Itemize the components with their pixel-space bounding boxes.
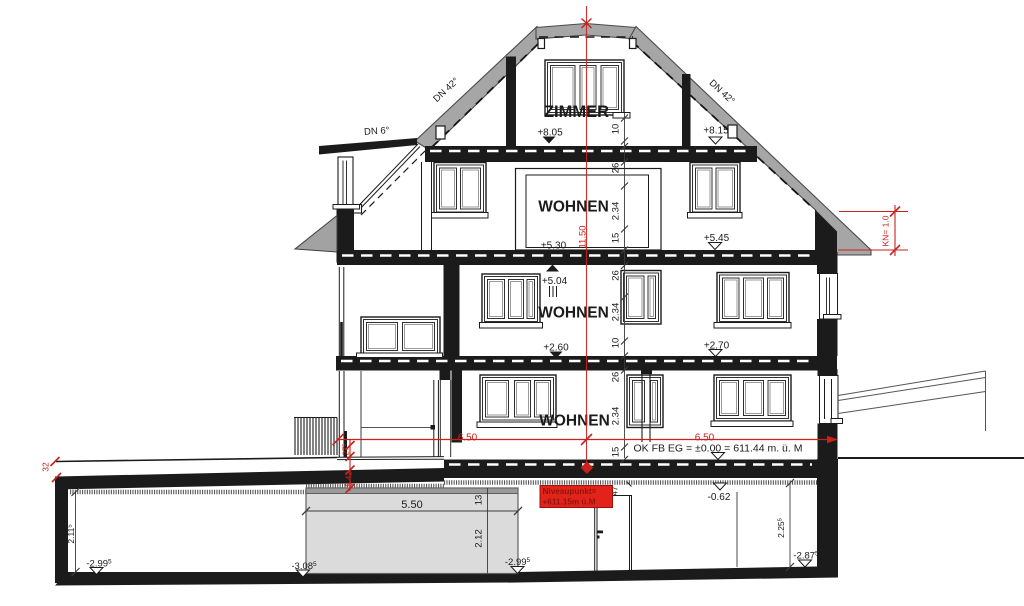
svg-text:+5.04: +5.04	[542, 276, 568, 287]
svg-text:26: 26	[611, 270, 622, 281]
svg-text:Niveaupunkt=: Niveaupunkt=	[543, 487, 597, 496]
svg-text:2.34: 2.34	[611, 202, 622, 221]
svg-text:WOHNEN: WOHNEN	[539, 413, 610, 430]
svg-text:5.42: 5.42	[345, 471, 354, 487]
svg-text:+5.30: +5.30	[541, 241, 567, 252]
svg-text:5.50: 5.50	[401, 499, 422, 511]
svg-text:2.34: 2.34	[611, 407, 622, 426]
svg-text:15: 15	[611, 447, 622, 458]
svg-text:10: 10	[611, 124, 622, 135]
svg-text:26: 26	[611, 372, 622, 383]
svg-text:DN 6°: DN 6°	[364, 125, 390, 138]
svg-text:-0.62: -0.62	[708, 492, 731, 503]
svg-text:KN= 1.0: KN= 1.0	[881, 215, 891, 246]
svg-text:2.12: 2.12	[474, 529, 485, 548]
svg-text:+8.15: +8.15	[703, 126, 729, 137]
svg-text:26: 26	[611, 163, 622, 174]
svg-text:13: 13	[474, 495, 485, 506]
svg-text:6.50: 6.50	[695, 433, 715, 444]
svg-text:+611.15m ü.M: +611.15m ü.M	[543, 498, 596, 507]
svg-text:2.34: 2.34	[611, 303, 622, 322]
svg-text:WOHNEN: WOHNEN	[538, 199, 609, 216]
svg-text:ZIMMER: ZIMMER	[544, 103, 609, 121]
svg-text:6.50: 6.50	[458, 433, 478, 444]
svg-text:WOHNEN: WOHNEN	[538, 305, 609, 322]
svg-text:11.50: 11.50	[578, 225, 589, 248]
svg-text:10: 10	[611, 338, 622, 349]
svg-text:32: 32	[41, 462, 51, 472]
svg-text:15: 15	[611, 233, 622, 244]
